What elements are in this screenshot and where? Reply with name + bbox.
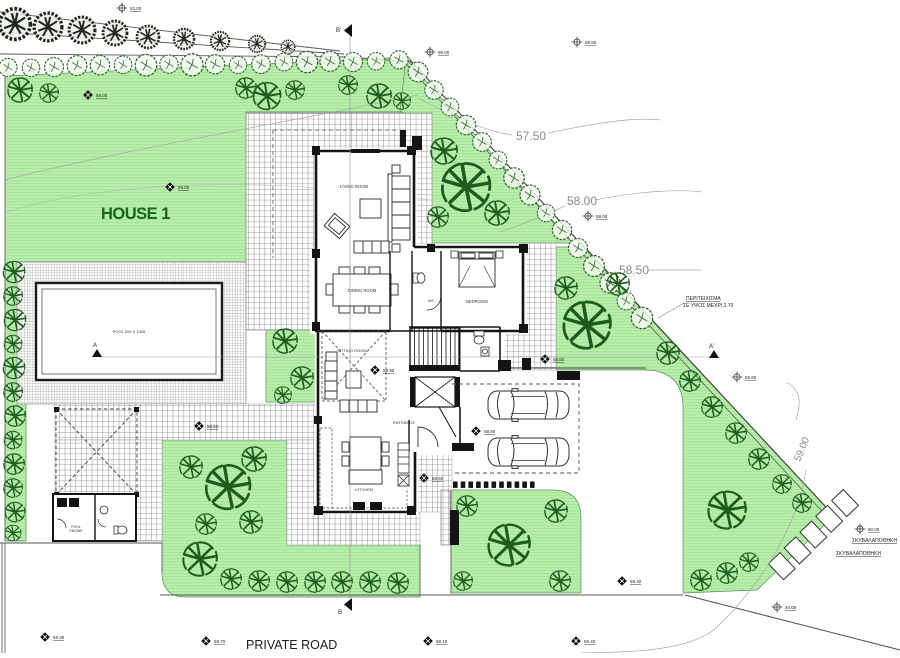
svg-text:58.70: 58.70 xyxy=(214,639,226,644)
svg-text:POOL 500 X 1000: POOL 500 X 1000 xyxy=(113,329,146,334)
svg-text:SITTING ROOM: SITTING ROOM xyxy=(337,348,366,353)
svg-text:A': A' xyxy=(709,344,714,350)
svg-text:59.00: 59.00 xyxy=(178,185,190,190)
svg-text:40.00: 40.00 xyxy=(785,605,797,610)
svg-text:BEDROOM: BEDROOM xyxy=(466,299,488,304)
svg-text:59.10: 59.10 xyxy=(436,639,448,644)
svg-text:PRIVATE ROAD: PRIVATE ROAD xyxy=(246,638,337,652)
svg-text:58.90: 58.90 xyxy=(383,368,395,373)
svg-text:59.40: 59.40 xyxy=(630,579,642,584)
svg-text:KITCHEN: KITCHEN xyxy=(355,487,373,492)
svg-text:DINING ROOM: DINING ROOM xyxy=(348,288,377,293)
svg-text:ΣΚΥΒΑΛΑΠΟΘΗΚΗ: ΣΚΥΒΑΛΑΠΟΘΗΚΗ xyxy=(836,551,881,557)
svg-text:ΠΕΡΙΤΕΙΧΙΣΜΑ: ΠΕΡΙΤΕΙΧΙΣΜΑ xyxy=(686,296,721,302)
svg-text:59.00: 59.00 xyxy=(96,93,108,98)
svg-text:A: A xyxy=(93,343,97,349)
svg-text:59.40: 59.40 xyxy=(584,639,596,644)
svg-text:59.50: 59.50 xyxy=(207,424,219,429)
svg-text:58.60: 58.60 xyxy=(484,429,496,434)
svg-text:58.60: 58.60 xyxy=(745,375,757,380)
svg-text:58.00: 58.00 xyxy=(567,194,597,208)
svg-text:ENTRANCE: ENTRANCE xyxy=(393,420,415,425)
svg-text:58.60: 58.60 xyxy=(553,357,565,362)
svg-text:ΣΚΥΒΑΛΑΠΟΘΗΚΗ: ΣΚΥΒΑΛΑΠΟΘΗΚΗ xyxy=(852,538,897,544)
svg-text:59.00: 59.00 xyxy=(596,214,608,219)
svg-text:ΣΕ ΥΨΟΣ ΜΕΧΡΙ 2.70: ΣΕ ΥΨΟΣ ΜΕΧΡΙ 2.70 xyxy=(683,303,734,309)
svg-text:B': B' xyxy=(336,28,341,34)
svg-text:58.60: 58.60 xyxy=(432,476,444,481)
svg-text:57.50: 57.50 xyxy=(516,129,546,143)
svg-text:52.00: 52.00 xyxy=(130,6,142,11)
svg-text:96.00: 96.00 xyxy=(438,50,450,55)
svg-text:58.60: 58.60 xyxy=(585,40,597,45)
svg-text:59.30: 59.30 xyxy=(53,635,65,640)
svg-text:HOUSE 1: HOUSE 1 xyxy=(101,205,170,223)
svg-text:ENGINE: ENGINE xyxy=(70,529,84,533)
svg-text:60.00: 60.00 xyxy=(868,527,880,532)
svg-text:B: B xyxy=(338,610,342,616)
svg-text:WC: WC xyxy=(428,299,435,303)
svg-text:LIVING ROOM: LIVING ROOM xyxy=(340,184,368,189)
